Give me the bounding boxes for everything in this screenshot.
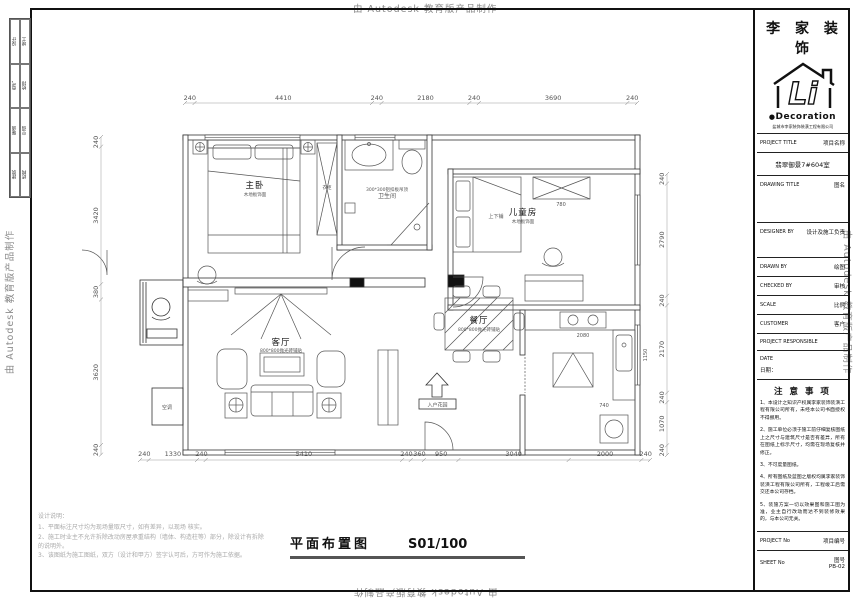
strip-label: 给排 <box>23 81 28 90</box>
sheet-no-en: SHEET No <box>760 560 785 566</box>
dim-top: 240 <box>468 94 480 102</box>
dim-top: 2180 <box>417 94 434 102</box>
project-title-cn: 项目名称 <box>823 139 845 147</box>
dim-left: 3420 <box>92 207 100 224</box>
dim-left: 380 <box>92 286 100 298</box>
strip-cell: 设计 <box>10 19 20 64</box>
dim-left: 3620 <box>92 364 100 381</box>
row-drawing-title: DRAWING TITLE 图名 <box>757 175 848 194</box>
strip-cell: 给排 <box>20 64 30 109</box>
room-label-kids: 儿童房 <box>509 207 538 218</box>
sheet-no-cn: 图号 PB-02 <box>829 556 845 570</box>
date-en: DATE <box>760 356 773 362</box>
room-note-master: 木地板饰面 <box>244 191 267 198</box>
design-notes: 设计说明： 1、平面标注尺寸均为现场量取尺寸，如有差异，以现场 核实。 2、施工… <box>38 512 268 560</box>
strip-label: 建筑 <box>13 170 18 179</box>
kids-closet-dim: 780 <box>556 202 566 208</box>
drawing-scale: S01/100 <box>408 537 467 552</box>
strip-cell: 结构 <box>20 153 30 198</box>
drawing-sheet: 由 Autodesk 教育版产品制作 由 Autodesk 教育版产品制作 由 … <box>0 0 856 600</box>
room-note-kids: 木地板饰面 <box>512 218 535 225</box>
left-balcony <box>140 280 183 345</box>
row-scale: SCALE 比例 <box>757 295 848 314</box>
room-note-living: 800*800抛光砖铺贴 <box>260 347 302 354</box>
checked-cn: 审核 <box>834 282 845 290</box>
dim-top: 3690 <box>545 94 562 102</box>
row-project-no: PROJECT No 项目编号 <box>757 531 848 550</box>
drawing-title-en: DRAWING TITLE <box>760 182 799 188</box>
notes-section: 注 意 事 项 1、本设计之知识产权属李家装饰装潢工程有限公司所有，未经本公司书… <box>757 379 848 531</box>
room-label-living: 客厅 <box>271 337 290 348</box>
dim-right: 240 <box>658 391 666 403</box>
logo-li-text: Li <box>788 77 818 112</box>
project-no-en: PROJECT No <box>760 538 790 544</box>
kitchen-fixtures <box>525 312 635 443</box>
row-sheet-no: SHEET No 图号 PB-02 <box>757 550 848 575</box>
customer-en: CUSTOMER <box>760 321 788 327</box>
dim-bottom: 240 <box>400 450 412 458</box>
dim-bottom: 950 <box>435 450 447 458</box>
note-item: 2、施工单位必须于施工前仔细复核图纸上之尺寸与建筑尺寸是否有差异，所有在图纸上标… <box>760 427 845 457</box>
dim-top: 4410 <box>275 94 292 102</box>
dim-bottom: 240 <box>195 450 207 458</box>
project-no-cn: 项目编号 <box>823 537 845 545</box>
title-block: 李 家 装 饰 Li ●Decoration 盐城市李家装饰装潢工程有限公司 P… <box>757 10 848 590</box>
stove-dim: 2080 <box>577 333 590 339</box>
dim-left: 240 <box>92 444 100 456</box>
dimension-labels: 240 4410 240 2180 240 3690 240 240 1330 … <box>92 94 666 458</box>
responsible-en: PROJECT RESPONSIBLE <box>760 339 818 345</box>
strip-label: 空调 <box>23 126 28 135</box>
row-date: DATE 日期： <box>757 350 848 379</box>
room-label-bath: 卫生间 <box>378 192 396 200</box>
house-logo-icon: Li <box>768 60 838 112</box>
project-title-en: PROJECT TITLE <box>760 140 797 146</box>
room-note-dining: 800*800抛光砖铺贴 <box>458 326 500 333</box>
strip-cell: 竣工 <box>20 19 30 64</box>
design-note-line: 1、平面标注尺寸均为现场量取尺寸，如有差异，以现场 核实。 <box>38 523 268 532</box>
scale-cn: 比例 <box>834 301 845 309</box>
strip-label: 电气 <box>13 81 18 90</box>
room-label-dining: 餐厅 <box>469 316 488 326</box>
customer-cn: 客户 <box>834 320 845 328</box>
title-underline <box>290 556 525 559</box>
strip-label: 暖通 <box>13 126 18 135</box>
brand-name: 李 家 装 饰 <box>757 10 848 60</box>
dim-top: 240 <box>184 94 196 102</box>
dim-right: 240 <box>658 173 666 185</box>
note-item: 4、所有图纸及蓝图之版权均属李家装饰装潢工程有限公司所有，工程竣工后需交还本公司… <box>760 474 845 496</box>
logo-deco-word: Decoration <box>776 112 837 122</box>
strip-label: 设计 <box>13 37 18 46</box>
dim-bottom: 360 <box>413 450 425 458</box>
entrance-label: 入户花园 <box>427 402 447 409</box>
notes-title: 注 意 事 项 <box>760 385 845 397</box>
design-note-line: 2、施工时业主不允许拆除改动房屋承重结构（墙体、构造柱等）部分，除设计有拆除的说… <box>38 533 268 552</box>
dim-bottom: 240 <box>639 450 651 458</box>
brand-logo: Li ●Decoration 盐城市李家装饰装潢工程有限公司 <box>757 60 848 130</box>
drawn-cn: 绘图 <box>834 263 845 271</box>
dim-top: 240 <box>371 94 383 102</box>
strip-label: 竣工 <box>23 37 28 46</box>
row-responsible: PROJECT RESPONSIBLE <box>757 333 848 350</box>
room-label-master: 主卧 <box>245 180 264 191</box>
strip-cell: 暖通 <box>10 108 20 153</box>
dim-right: 1070 <box>658 416 666 433</box>
strip-label: 结构 <box>23 170 28 179</box>
note-item: 1、本设计之知识产权属李家装饰装潢工程有限公司所有，未经本公司书面授权不得挪用。 <box>760 400 845 422</box>
dim-bottom: 3040 <box>505 450 522 458</box>
drawing-title-cn: 图名 <box>834 181 845 189</box>
logo-decoration-text: ●Decoration <box>769 112 836 122</box>
master-bedroom-furniture <box>188 140 337 301</box>
row-project-title: PROJECT TITLE 项目名称 <box>757 133 848 152</box>
dim-bottom: 1330 <box>165 450 182 458</box>
drawing-title: 平面布置图 <box>290 533 370 552</box>
dim-bottom: 5410 <box>296 450 313 458</box>
company-full-name: 盐城市李家装饰装潢工程有限公司 <box>772 124 833 129</box>
closet-label: 衣柜 <box>323 184 332 191</box>
ac-label: 空调 <box>162 404 172 411</box>
note-item: 5、装施方案一切以效果图和施工图为准，业主自行改动而达不到装修效果的，与本公司无… <box>760 502 845 524</box>
logo-dot: ● <box>769 113 776 121</box>
date-cn: 日期： <box>760 366 777 374</box>
row-drawn: DRAWN BY 绘图 <box>757 257 848 276</box>
dim-top: 240 <box>626 94 638 102</box>
designer-en: DESIGNER BY <box>760 229 794 235</box>
design-notes-title: 设计说明： <box>38 512 268 521</box>
dim-left: 240 <box>92 136 100 148</box>
sheet-no-value: PB-02 <box>829 564 845 570</box>
row-customer: CUSTOMER 客户 <box>757 314 848 333</box>
dim-right: 240 <box>658 444 666 456</box>
dim-right: 240 <box>658 294 666 306</box>
note-item: 3、不可度量图纸。 <box>760 462 845 469</box>
row-designer: DESIGNER BY 设计及施工负责 <box>757 222 848 241</box>
strip-cell: 建筑 <box>10 153 20 198</box>
dim-right: 2790 <box>658 231 666 248</box>
discipline-strip: 设计 竣工 电气 给排 暖通 空调 建筑 结构 <box>9 18 31 198</box>
designer-cn: 设计及施工负责 <box>806 228 845 236</box>
drawing-title-bar: 平面布置图 S01/100 <box>290 533 530 559</box>
project-name: 翡翠御景7#604室 <box>757 152 848 175</box>
design-note-line: 3、该图纸为施工图纸，双方（设计和甲方）签字认可后，方可作为施工依据。 <box>38 551 268 560</box>
strip-cell: 空调 <box>20 108 30 153</box>
floor-plan: 240 4410 240 2180 240 3690 240 240 1330 … <box>55 85 755 505</box>
kitchen-side-dim: 1150 <box>643 349 649 362</box>
checked-en: CHECKED BY <box>760 283 792 289</box>
drawn-en: DRAWN BY <box>760 264 787 270</box>
dim-bottom: 2000 <box>597 450 614 458</box>
kids-room-furniture <box>453 177 590 301</box>
scale-en: SCALE <box>760 302 776 308</box>
autodesk-watermark-left: 由 Autodesk 教育版产品制作 <box>2 227 16 377</box>
bunk-bed-label: 上下铺 <box>488 213 503 220</box>
strip-cell: 电气 <box>10 64 20 109</box>
room-labels: 主卧 木地板饰面 衣柜 300*300铝扣板吊顶 卫生间 儿童房 木地板饰面 上… <box>162 180 649 411</box>
dim-bottom: 240 <box>138 450 150 458</box>
bath-note: 300*300铝扣板吊顶 <box>366 186 408 193</box>
kitchen-low-dim: 740 <box>599 403 609 409</box>
dim-right: 2170 <box>658 341 666 358</box>
row-checked: CHECKED BY 审核 <box>757 276 848 295</box>
